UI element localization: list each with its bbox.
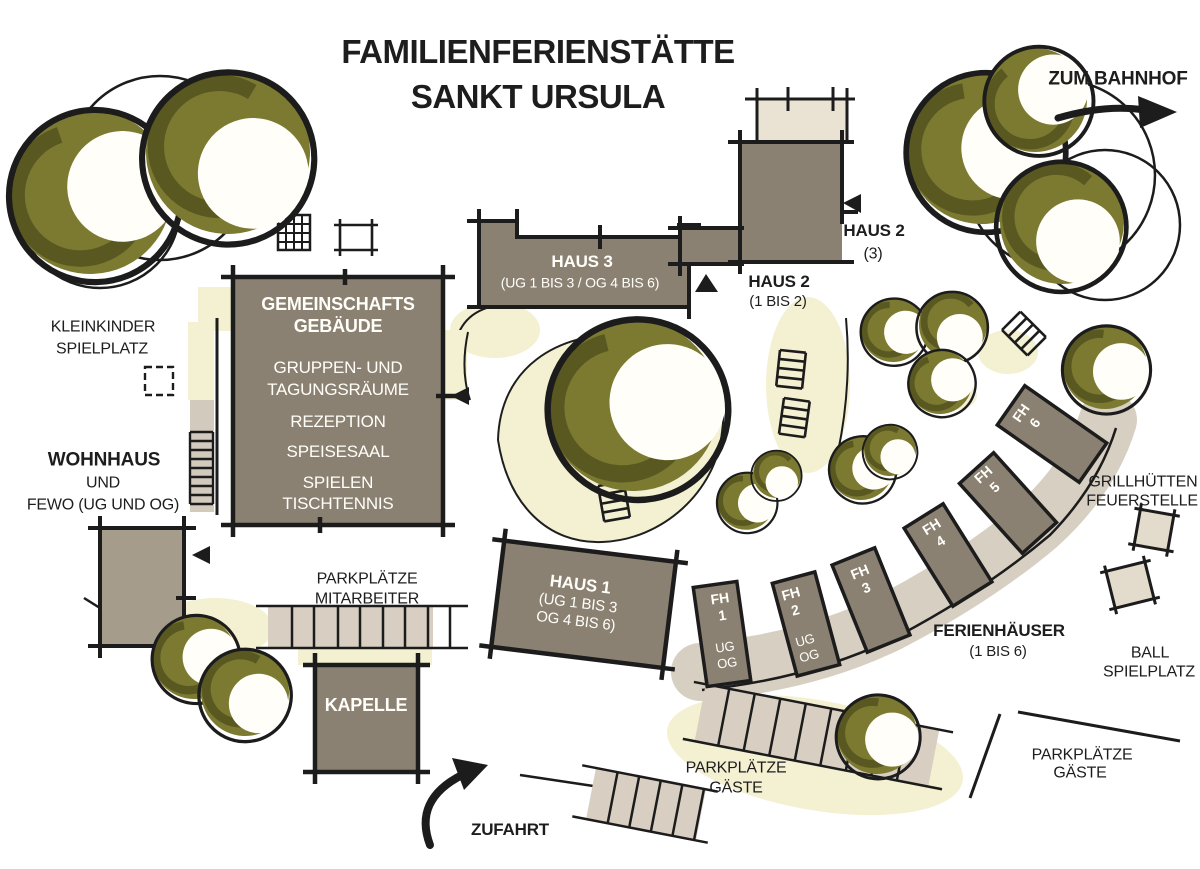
tree — [751, 450, 801, 501]
site-map: FAMILIENFERIENSTÄTTE SANKT URSULA ZUM BA… — [0, 0, 1200, 869]
grillhuetten-label-2: FEUERSTELLE — [1086, 491, 1198, 510]
sandbox-square — [145, 367, 173, 395]
fh1-floors: UG OG — [714, 638, 738, 672]
playground-trellis — [278, 215, 310, 250]
haus2a-floors: (3) — [864, 244, 883, 263]
entrance-marker — [192, 546, 210, 564]
grill-hut — [1099, 554, 1162, 615]
gemeinschaft-room: REZEPTION — [290, 412, 386, 432]
gemeinschaft-room: TAGUNGSRÄUME — [267, 380, 409, 400]
parking-haus2 — [745, 87, 855, 140]
building-haus-2 — [668, 130, 858, 276]
parkplaetze-gaeste-mitte-2: GÄSTE — [709, 778, 762, 797]
wohnhaus-name: WOHNHAUS — [48, 450, 160, 473]
haus3-name: HAUS 3 — [551, 252, 612, 272]
road-line — [520, 775, 600, 787]
entrance-marker — [695, 274, 718, 292]
gemeinschaft-name-1: GEMEINSCHAFTS — [261, 294, 414, 316]
haus2a-name: HAUS 2 — [843, 221, 904, 241]
lawn — [188, 322, 214, 400]
fh1-num: 1 — [712, 606, 732, 625]
zufahrt-label: ZUFAHRT — [471, 820, 549, 840]
road-line — [970, 714, 1000, 798]
gemeinschaft-room: SPIELEN — [303, 473, 373, 493]
ferienhaeuser-label-2: (1 BIS 6) — [969, 643, 1026, 661]
playground-square — [334, 219, 378, 256]
parkplaetze-mitarbeiter-1: PARKPLÄTZE — [317, 569, 418, 588]
map-title-line1: FAMILIENFERIENSTÄTTE — [341, 32, 734, 72]
wohnhaus-line2: UND — [86, 473, 120, 492]
haus1-label: HAUS 1 (UG 1 BIS 3 OG 4 BIS 6) — [535, 570, 621, 636]
gemeinschaft-name-2: GEBÄUDE — [294, 316, 383, 338]
parkplaetze-gaeste-rechts-2: GÄSTE — [1053, 763, 1106, 782]
building-kapelle — [303, 653, 430, 784]
tree — [983, 47, 1094, 156]
ferienhaeuser-label-1: FERIENHÄUSER — [933, 621, 1065, 641]
kleinkinder-label-2: SPIELPLATZ — [56, 339, 148, 358]
parkplaetze-gaeste-mitte-1: PARKPLÄTZE — [686, 758, 787, 777]
gemeinschaft-room: TISCHTENNIS — [282, 494, 393, 514]
road-line — [1018, 712, 1180, 741]
parking-mitarbeiter — [256, 606, 468, 648]
map-title-line2: SANKT URSULA — [411, 77, 665, 117]
wohnhaus-line3: FEWO (UG UND OG) — [27, 495, 179, 514]
map-graphics — [0, 0, 1200, 869]
grill-hut — [1127, 502, 1181, 557]
ballspielplatz-label-1: BALL — [1131, 643, 1169, 662]
kleinkinder-label-1: KLEINKINDER — [51, 317, 156, 336]
parkplaetze-gaeste-rechts-1: PARKPLÄTZE — [1032, 745, 1133, 764]
gemeinschaft-room: GRUPPEN- UND — [274, 358, 403, 378]
fh1-og: OG — [716, 654, 738, 672]
haus3-floors: (UG 1 BIS 3 / OG 4 BIS 6) — [501, 275, 659, 292]
haus2b-floors: (1 BIS 2) — [749, 293, 806, 311]
parkplaetze-mitarbeiter-2: MITARBEITER — [315, 589, 419, 608]
gemeinschaft-room: SPEISESAAL — [287, 442, 390, 462]
haus2b-name: HAUS 2 — [748, 272, 809, 292]
fh1-name: FH — [710, 589, 730, 608]
ballspielplatz-label-2: SPIELPLATZ — [1103, 662, 1195, 681]
grillhuetten-label-1: GRILLHÜTTEN — [1089, 472, 1198, 491]
kapelle-name: KAPELLE — [325, 695, 408, 717]
zum-bahnhof-label: ZUM BAHNHOF — [1048, 69, 1187, 92]
